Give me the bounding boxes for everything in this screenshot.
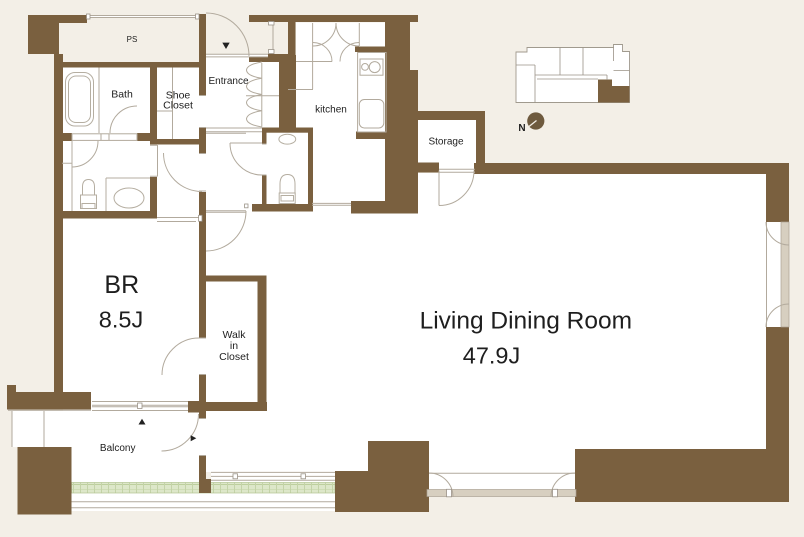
- svg-text:Storage: Storage: [428, 137, 463, 148]
- svg-text:8.5J: 8.5J: [99, 307, 143, 333]
- svg-text:47.9J: 47.9J: [463, 343, 521, 369]
- svg-text:kitchen: kitchen: [315, 104, 347, 115]
- svg-text:Living Dining Room: Living Dining Room: [420, 308, 632, 335]
- svg-text:Bath: Bath: [111, 89, 133, 101]
- svg-text:Entrance: Entrance: [208, 76, 248, 87]
- svg-text:PS: PS: [127, 35, 138, 44]
- svg-text:Balcony: Balcony: [100, 443, 136, 454]
- svg-text:N: N: [518, 123, 525, 134]
- svg-text:BR: BR: [104, 271, 139, 299]
- svg-text:Closet: Closet: [219, 351, 249, 363]
- svg-text:Closet: Closet: [163, 100, 193, 112]
